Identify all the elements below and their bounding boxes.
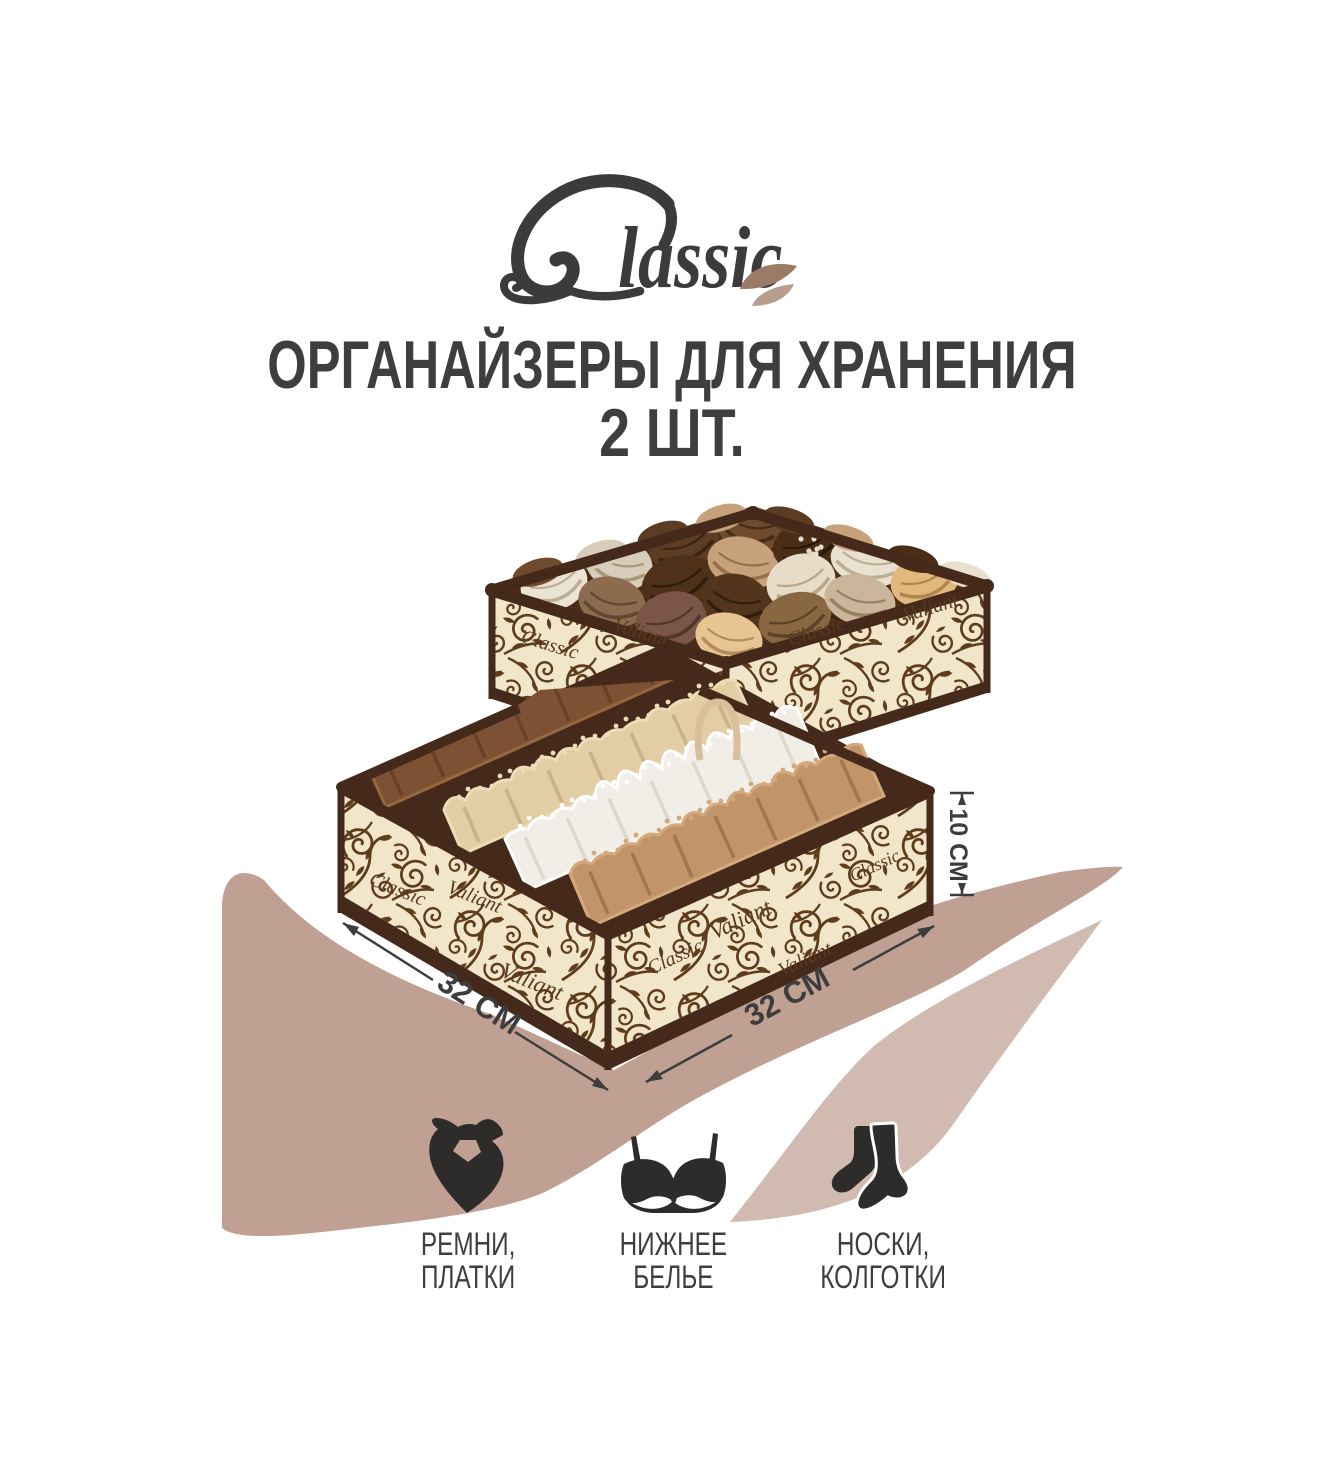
svg-text:2 ШТ.: 2 ШТ. bbox=[599, 396, 745, 471]
svg-text:ОРГАНАЙЗЕРЫ ДЛЯ ХРАНЕНИЯ: ОРГАНАЙЗЕРЫ ДЛЯ ХРАНЕНИЯ bbox=[267, 327, 1076, 403]
svg-text:КОЛГОТКИ: КОЛГОТКИ bbox=[820, 1260, 946, 1296]
svg-text:БЕЛЬЕ: БЕЛЬЕ bbox=[633, 1260, 713, 1296]
svg-text:НОСКИ,: НОСКИ, bbox=[837, 1227, 929, 1263]
svg-text:НИЖНЕЕ: НИЖНЕЕ bbox=[620, 1227, 727, 1263]
svg-text:10 СМ: 10 СМ bbox=[944, 808, 972, 881]
svg-text:РЕМНИ,: РЕМНИ, bbox=[421, 1227, 515, 1263]
svg-text:ПЛАТКИ: ПЛАТКИ bbox=[421, 1260, 515, 1296]
svg-text:lassic: lassic bbox=[618, 209, 782, 306]
